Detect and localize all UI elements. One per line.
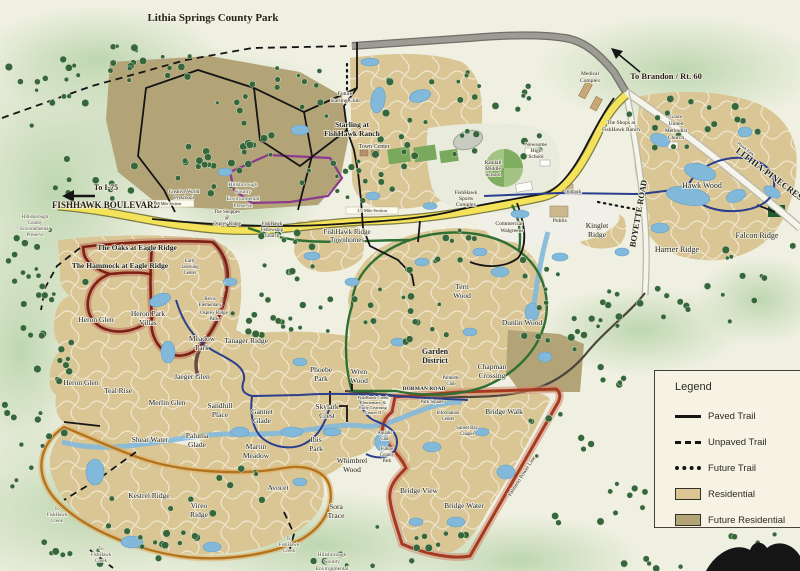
early-learning-2: Learning [181,265,199,270]
tree-icon [254,472,259,477]
tree-icon [406,267,413,274]
starling-1: Starling at [335,120,369,129]
tree-icon [608,489,613,494]
tree-icon [182,158,188,164]
tree-icon [124,528,131,535]
tree-icon [404,142,411,149]
tree-icon [155,555,162,562]
tree-icon [238,465,245,472]
tree-icon [655,115,661,121]
tree-icon [165,73,171,79]
tree-icon [326,329,330,333]
tree-icon [457,257,463,263]
tree-icon [262,263,267,268]
tree-icon [407,308,413,314]
tree-icon [260,135,268,143]
preserve-left-2: County [28,221,43,226]
tree-icon [731,103,739,111]
future-starling-2: Starling Club [330,98,360,104]
preserve-left-3: Environmental [20,227,50,232]
tree-icon [588,315,595,322]
tree-icon [324,114,328,118]
tree-icon [437,302,441,306]
tree-icon [56,378,63,385]
tree-icon [243,94,248,99]
tree-icon [581,332,588,339]
preserve-left-1: Hillsborough [22,215,49,220]
tree-icon [36,292,42,298]
tree-icon [302,79,308,85]
tree-icon [617,380,622,385]
tree-icon [29,465,34,470]
tree-icon [230,311,235,316]
merlin-glen: Merlin Glen [149,398,186,407]
tree-icon [556,272,560,276]
tree-icon [187,54,192,59]
tree-icon [652,125,659,132]
tree-icon [751,297,757,303]
tree-icon [356,168,362,174]
whimbrel-wood-1: Whimbrel [337,456,367,465]
fishhawk-boulevard: FISHHAWK BOULEVARD [52,200,161,210]
tree-icon [607,289,612,294]
tree-icon [327,296,333,302]
legend-label: Paved Trail [708,411,756,422]
sora-trace-2: Trace [328,511,345,520]
tree-icon [275,77,281,83]
kinglet-ridge-1: Kinglet [586,221,609,230]
tanager-ridge: Tanager Ridge [224,336,269,345]
tree-icon [39,332,46,339]
to-fishhawk-creek-b2: FishHawk [91,553,112,558]
mile-68: .68 Mile Section [155,201,182,206]
tree-icon [642,489,648,495]
future-county-park-3: Park [383,459,392,464]
grace-church-1: Grace [669,114,683,120]
tree-icon [28,332,34,338]
to-fishhawk-creek-c1: To [286,537,292,542]
whimbrel-wood-2: Wood [343,465,361,474]
tree-icon [357,159,361,163]
tree-icon [754,128,761,135]
tree-icon [647,561,652,566]
paved-trail-sample-icon [675,415,701,418]
tree-icon [761,275,767,281]
tree-icon [310,264,315,269]
legend-item-future-residential: Future Residential [675,507,800,533]
tree-icon [407,118,412,123]
tree-icon [161,542,168,549]
tree-icon [389,186,395,192]
tree-icon [12,252,18,258]
tree-icon [34,267,38,271]
tree-icon [378,287,382,291]
tree-icon [161,55,165,59]
tree-icon [67,551,73,557]
tree-icon [207,190,214,197]
future-residential-swatch-icon [675,514,701,526]
avocet: Avocet [267,483,289,492]
tree-icon [621,375,627,381]
tree-icon [456,80,460,84]
bridge-view: Bridge View [400,486,439,495]
tree-icon [163,530,171,538]
tree-icon [567,334,575,342]
tree-icon [457,97,463,103]
tree-icon [41,292,48,299]
tree-icon [251,312,257,318]
tree-icon [572,347,577,352]
tree-icon [195,164,201,170]
tree-icon [588,441,595,448]
ibis-park-1: Ibis [310,435,321,444]
medical-complex-1: Medical [581,71,599,77]
tree-icon [53,185,59,191]
skylark-crest-2: Crest [319,411,336,420]
meadow-park-1: Meadow [189,334,216,343]
tree-icon [401,163,407,169]
tree-icon [678,564,683,569]
grace-church-4: Church [668,135,684,141]
tree-icon [49,297,55,303]
tree-icon [465,129,470,134]
martin-meadow-2: Meadow [243,451,270,460]
hawk-logo [706,543,800,571]
bridge-water: Bridge Water [444,501,484,510]
tree-icon [425,544,433,552]
shear-water: Shear Water [132,435,169,444]
legend-title: Legend [675,381,800,393]
tree-icon [115,44,119,48]
harrier-ridge: Harrier Ridge [655,245,700,254]
tree-icon [370,318,376,324]
tree-icon [790,243,796,249]
future-starling-1: Future [338,91,353,97]
falcon-ridge: Falcon Ridge [736,231,779,240]
tree-icon [671,144,677,150]
osprey-ridge-park-1: Osprey Ridge [200,311,228,316]
palmetto-club-1: Palmetto [442,376,460,381]
creative-world-1: Creative World [169,190,200,195]
tree-icon [728,319,733,324]
medical-complex-2: Complex [580,78,600,84]
tree-icon [477,84,481,88]
tree-icon [72,63,77,68]
tree-icon [597,518,604,525]
tree-icon [368,302,374,308]
preserve-bottom-3: Environmental [316,566,349,571]
tree-icon [57,358,63,364]
gannet-glade-1: Gannet [251,407,274,416]
tree-icon [241,120,247,126]
tree-icon [637,300,644,307]
tree-icon [265,297,271,303]
tree-icon [52,548,59,555]
tree-icon [515,106,521,112]
phoebe-park-2: Park [314,374,328,383]
sports-complex-3: Complex [456,202,476,208]
tree-icon [711,121,718,128]
tree-icon [521,94,526,99]
tree-icon [268,152,273,157]
tree-icon [466,235,472,241]
gannet-glade-2: Glade [253,416,272,425]
lithia-springs-county-park: Lithia Springs County Park [147,12,279,24]
tree-icon [537,133,543,139]
tree-icon [406,336,413,343]
tree-icon [520,153,527,160]
tree-icon [211,184,216,189]
tree-icon [82,99,89,106]
tree-icon [399,134,405,140]
tree-icon [6,258,12,264]
legend-label: Future Residential [708,515,785,526]
tree-icon [68,339,74,345]
tree-icon [525,83,531,89]
to-fishhawk-creek-a1: To [54,507,60,512]
shops-fhr-1: The Shops at [607,120,636,126]
tree-icon [61,429,68,436]
to-fishhawk-creek-c3: Creek [283,549,295,554]
tree-icon [153,540,158,545]
starling-2: FishHawk Ranch [324,129,380,138]
fh-ridge-townhomes-2: Townhomes [330,236,364,244]
tree-icon [35,88,39,92]
tree-icon [127,78,132,83]
tree-icon [600,299,606,305]
tree-icon [11,414,17,420]
tree-icon [308,243,315,250]
tree-icon [351,296,358,303]
tree-icon [307,168,312,173]
tree-icon [575,329,581,335]
tree-icon [621,560,628,567]
tree-icon [407,293,414,300]
tree-icon [722,246,730,254]
tree-icon [581,446,587,452]
tree-icon [275,318,281,324]
garden-district-1: Garden [422,347,449,356]
tree-icon [21,240,28,247]
grace-church-3: Methodist [665,128,688,134]
tree-icon [411,152,418,159]
tree-icon [435,256,441,262]
tree-icon [734,116,741,123]
tree-icon [348,164,355,171]
unpaved-trail-sample-icon [675,441,701,444]
to-brandon: To Brandon / Rt. 60 [630,71,702,81]
tree-icon [236,167,242,173]
heron-glen-upper: Heron Glen [78,315,113,324]
tree-icon [640,505,645,510]
tree-icon [138,535,143,540]
tree-icon [520,257,527,264]
tree-icon [615,313,622,320]
sandhill-place-1: Sandhill [207,401,232,410]
tree-icon [615,482,620,487]
sunset-bay-2: Chapel [460,432,474,437]
tree-icon [38,411,42,415]
publix: Publix [553,218,568,224]
jaeger-glen: Jaeger Glen [174,372,210,381]
tern-wood-2: Wood [453,291,471,300]
legend-label: Residential [708,489,755,500]
tree-icon [289,327,294,332]
tree-icon [739,273,746,280]
tree-icon [204,154,211,161]
tree-icon [66,177,71,182]
tree-icon [106,523,112,529]
tree-icon [82,279,89,286]
legend-item-unpaved-trail: Unpaved Trail [675,429,800,455]
future-county-park-1: Future [381,447,394,452]
tree-icon [704,126,711,133]
legend-item-future-trail: Future Trail [675,455,800,481]
shoppes-osprey-2: @ [225,216,230,221]
tree-icon [363,320,368,325]
tree-icon [259,497,266,504]
tree-icon [345,195,349,199]
tree-icon [234,99,240,105]
tree-icon [281,237,286,242]
tree-icon [558,412,563,417]
tree-icon [281,324,286,329]
tree-icon [299,104,304,109]
shops-fhr-2: FishHawk Ranch [602,127,640,133]
tree-icon [685,307,691,313]
preserve-mid-1: Hillsborough [228,182,257,188]
tree-icon [215,101,219,105]
tree-icon [168,506,174,512]
legend-label: Unpaved Trail [708,437,767,448]
tree-icon [667,95,674,102]
tree-icon [386,78,394,86]
oaks-at-eagle-ridge: The Oaks at Eagle Ridge [97,243,177,252]
tree-icon [34,416,41,423]
tree-icon [655,286,661,292]
heron-park-villas-2: Villas [139,318,157,327]
aquatic-club-2: Club [380,437,390,442]
tree-icon [178,63,185,70]
tree-icon [460,133,465,138]
tree-icon [436,542,441,547]
tree-icon [401,295,405,299]
heron-park-villas-1: Heron Park [131,309,166,318]
tree-icon [36,273,41,278]
tree-icon [66,368,73,375]
tree-icon [26,274,31,279]
fellowship-church-3: Church [265,234,280,239]
tree-icon [409,558,415,564]
tree-icon [450,238,455,243]
dorman-road: DORMAN ROAD [403,386,446,392]
tree-icon [458,228,462,232]
tree-icon [370,563,375,568]
tree-icon [310,558,317,565]
wren-wood-1: Wren [351,367,368,376]
tree-icon [245,160,252,167]
tree-icon [10,484,15,489]
tree-icon [382,109,390,117]
tree-icon [20,270,25,275]
tree-icon [472,148,478,154]
tree-icon [473,131,480,138]
tree-icon [661,314,666,319]
tree-icon [318,305,323,310]
tree-icon [545,415,552,422]
tree-icon [626,111,632,117]
tree-icon [21,301,28,308]
tree-icon [41,539,47,545]
osprey-ridge-park-2: Park [209,317,219,322]
tree-icon [571,316,577,322]
tree-icon [299,302,306,309]
heron-glen-lower: Heron Glen [63,378,98,387]
tree-icon [578,435,585,442]
tree-icon [664,293,670,299]
tree-icon [732,534,738,540]
tree-icon [330,160,336,166]
tree-icon [184,73,191,80]
tree-icon [46,433,53,440]
legend: Legend Paved Trail Unpaved Trail Future … [654,370,800,528]
tree-icon [29,123,34,128]
tree-icon [39,283,45,289]
tree-icon [110,60,116,66]
fhc-elementary-4: Center II [365,410,382,415]
tree-icon [34,365,42,373]
hawk-wood: Hawk Wood [682,181,722,190]
legend-item-residential: Residential [675,481,800,507]
tree-icon [185,144,191,150]
tree-icon [556,520,562,526]
tree-icon [20,325,26,331]
tree-icon [598,318,603,323]
garden-district-2: District [422,356,448,365]
tree-icon [139,57,146,64]
kestrel-ridge: Kestrel Ridge [128,491,170,500]
tree-icon [597,364,604,371]
shoppes-osprey-3: Osprey Ridge [213,222,241,227]
aquatic-club-1: Aquatic [377,431,392,436]
tree-icon [430,327,435,332]
tree-icon [61,94,66,99]
tree-icon [335,174,339,178]
tree-icon [268,132,275,139]
sunset-bay-1: Sunset Bay [456,426,478,431]
hammock-at-eagle-ridge: The Hammock at Eagle Ridge [72,261,169,270]
tree-icon [259,292,264,297]
kinglet-ridge-2: Ridge [588,230,607,239]
fh-ridge-townhomes-1: FishHawk Ridge [323,228,370,236]
park-square: Park Square [420,400,443,405]
tree-icon [343,168,349,174]
tree-icon [317,99,324,106]
tree-icon [17,79,23,85]
to-fishhawk-creek-a2: FishHawk [47,513,68,518]
preserve-left-4: Preserve [26,233,44,238]
tree-icon [131,44,138,51]
wren-wood-2: Wood [350,376,368,385]
tree-icon [458,532,465,539]
tree-icon [729,255,733,259]
tree-icon [707,105,712,110]
tree-icon [131,162,139,170]
tree-icon [13,235,20,242]
tern-wood-1: Tern [455,282,469,291]
to-fishhawk-creek-b3: Creek [95,559,107,564]
tree-icon [64,156,71,163]
